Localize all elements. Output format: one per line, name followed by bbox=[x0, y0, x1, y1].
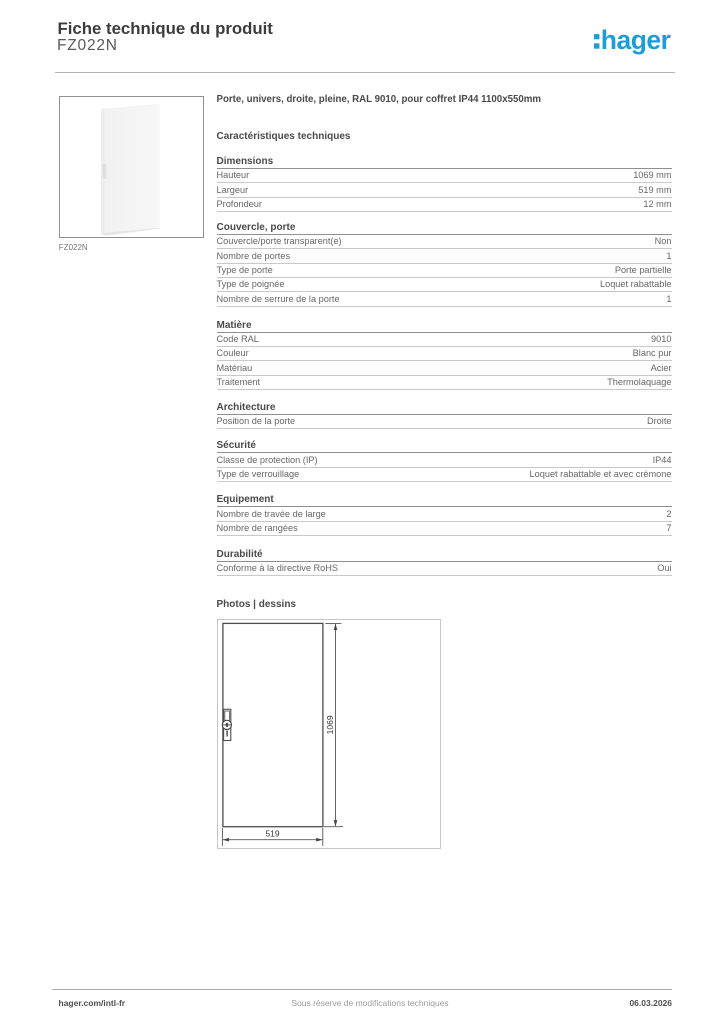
svg-text:hager: hager bbox=[601, 25, 671, 55]
svg-text:1069: 1069 bbox=[325, 715, 335, 734]
svg-text:519: 519 bbox=[265, 828, 279, 838]
